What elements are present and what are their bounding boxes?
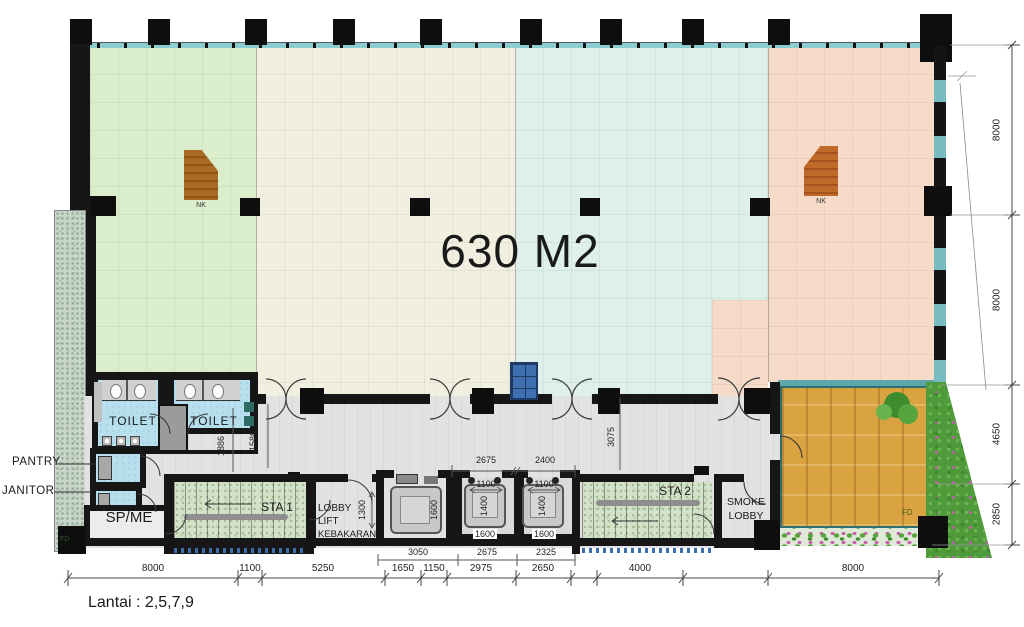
dim-bottom-6: 2650 [532, 563, 554, 574]
wc-fixture [184, 384, 196, 399]
pantry-counter [98, 456, 112, 480]
urinal-row [94, 382, 102, 422]
dim-2325-bottom: 2325 [536, 547, 556, 557]
plant [898, 404, 918, 424]
room-label-toilet-left: TOILET [109, 414, 157, 428]
smokelobby-wall [722, 474, 744, 482]
curtain-wall-top [70, 42, 948, 48]
dim-1100-right: 1100 [534, 479, 553, 489]
column [580, 198, 600, 216]
room-label-sta1: STA 1 [261, 500, 293, 514]
right-dim-ticks [1008, 41, 1016, 549]
dim-2675-bottom: 2675 [477, 547, 497, 557]
wall-tag [694, 466, 709, 475]
room-label-pantry: PANTRY [12, 456, 61, 468]
column [420, 19, 442, 45]
site-boundary-line [960, 83, 986, 390]
dim-1300: 1300 [357, 500, 367, 520]
sink-fixture [116, 436, 126, 446]
dim-right-3: 2850 [992, 503, 1003, 525]
column [744, 388, 770, 414]
dim-right-1: 8000 [992, 289, 1003, 311]
zone-pink [768, 46, 938, 382]
marker-fd-left: FD [60, 536, 69, 543]
dim-right-2: 4650 [992, 423, 1003, 445]
toilet-partition [164, 372, 174, 406]
marker-nk-left: NK [196, 202, 206, 209]
wc-fixture [134, 384, 146, 399]
dim-bottom-7: 4000 [629, 563, 651, 574]
cabinet [510, 362, 538, 400]
floor-note: Lantai : 2,5,7,9 [88, 594, 194, 612]
dim-1100-left: 1100 [476, 479, 495, 489]
dim-bott om-8: 8000 [842, 563, 864, 574]
column [90, 196, 116, 216]
dim-bottom-0: 8000 [142, 563, 164, 574]
column [245, 19, 267, 45]
shaft [158, 404, 188, 452]
column [768, 19, 790, 45]
room-label-lift-lobby-line2: LIFT [318, 516, 339, 527]
column [410, 198, 430, 216]
area-label: 630 M2 [440, 224, 599, 278]
sta2-walls [714, 474, 722, 548]
flower-bed-bottom [778, 528, 934, 546]
column [70, 19, 92, 45]
liftbank-wall [454, 470, 462, 538]
room-label-toilet-right: TOILET [190, 414, 238, 428]
column [240, 198, 260, 216]
room-label-smoke-lobby-line2: LOBBY [728, 510, 763, 522]
room-label-lift-lobby-line1: LOBBY [318, 503, 351, 514]
dim-1886: 1886 [216, 436, 226, 456]
dim-3075: 3075 [606, 427, 616, 447]
dim-2675-top: 2675 [476, 455, 496, 465]
sink-fixture [244, 402, 254, 412]
wall-bottom [84, 538, 778, 546]
sta1-open-edge [174, 548, 306, 553]
dim-1400-b: 1400 [537, 496, 547, 516]
firelift-machine [424, 476, 438, 484]
dim-1586: 1586 [248, 431, 258, 451]
sink-fixture [130, 436, 140, 446]
dim-bottom-2: 5250 [312, 563, 334, 574]
column [300, 388, 324, 414]
room-label-lift-lobby-line3: KEBAKARAN [318, 529, 376, 540]
room-label-janitor: JANITOR [2, 485, 55, 497]
column [333, 19, 355, 45]
dim-2400-top: 2400 [535, 455, 555, 465]
sta2-treads [582, 482, 712, 546]
room-label-smoke-lobby-line1: SMOKE [727, 496, 765, 508]
sta2-open-edge [582, 548, 712, 553]
dim-1600-a: 1600 [473, 529, 497, 539]
bottom-dim-chain [68, 570, 939, 586]
firelift-wall [376, 470, 394, 478]
corridor-wall [306, 394, 430, 404]
right-dim-chain [1004, 45, 1020, 545]
firelift-wall [376, 470, 384, 546]
floor-plan-canvas: 630 M2 TOILET TOILET PANTRY JANITOR SP/M… [0, 0, 1024, 627]
sink-fixture [102, 436, 112, 446]
dim-bottom-1: 1100 [239, 563, 261, 574]
planter-strip-left [54, 210, 86, 552]
room-label-spme: SP/ME [106, 509, 153, 526]
bottom-dim-ticks [64, 573, 943, 583]
deck-wall [770, 382, 780, 434]
marker-fd-deck: FD [902, 508, 913, 517]
lift-door-roller [526, 477, 533, 484]
stall-divider [202, 380, 204, 400]
plant [876, 404, 892, 420]
zone-cream [256, 46, 515, 396]
liftbank-wall [454, 470, 470, 478]
dim-3050: 3050 [408, 547, 428, 557]
sink-fixture [244, 416, 254, 426]
sta1-landing-rail [184, 514, 288, 520]
stall-divider [126, 380, 128, 400]
firelift-machine [396, 474, 418, 484]
column [520, 19, 542, 45]
dim-1600-firecar: 1600 [429, 500, 439, 520]
column [598, 388, 620, 414]
fire-lift-car-inner [400, 496, 430, 524]
zone-divider [515, 46, 516, 396]
marker-nk-right: NK [816, 198, 826, 205]
dim-1400-a: 1400 [479, 496, 489, 516]
dim-1600-b: 1600 [532, 529, 556, 539]
column [924, 186, 952, 216]
liftbank-wall [502, 470, 528, 478]
dim-bottom-4: 1150 [423, 563, 445, 574]
zone-pink-extension [712, 300, 768, 396]
wall-left-upper [70, 44, 90, 212]
dim-bottom-3: 1650 [392, 563, 414, 574]
lobby-wall [306, 474, 348, 482]
column [600, 19, 622, 45]
column [472, 388, 494, 414]
column [148, 19, 170, 45]
lobby-wall [306, 474, 316, 548]
room-label-sta2: STA 2 [659, 484, 691, 498]
column [750, 198, 770, 216]
sta2-walls [572, 474, 694, 482]
column [682, 19, 704, 45]
dim-right-0: 8000 [992, 119, 1003, 141]
wc-fixture [212, 384, 224, 399]
column [754, 520, 780, 550]
sta2-landing-rail [596, 500, 700, 506]
column [918, 516, 948, 548]
lift-door-roller [468, 477, 475, 484]
wc-fixture [110, 384, 122, 399]
dim-bottom-5: 2975 [470, 563, 492, 574]
